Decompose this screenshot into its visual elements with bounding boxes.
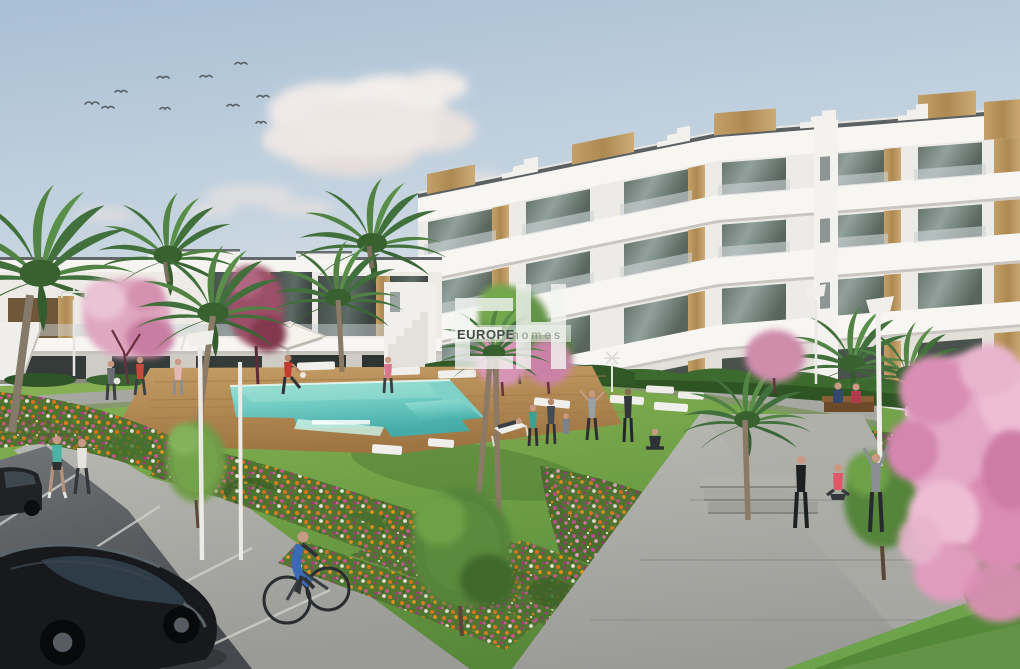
svg-text:homes: homes bbox=[512, 328, 563, 342]
svg-text:EUROPE: EUROPE bbox=[457, 327, 515, 342]
